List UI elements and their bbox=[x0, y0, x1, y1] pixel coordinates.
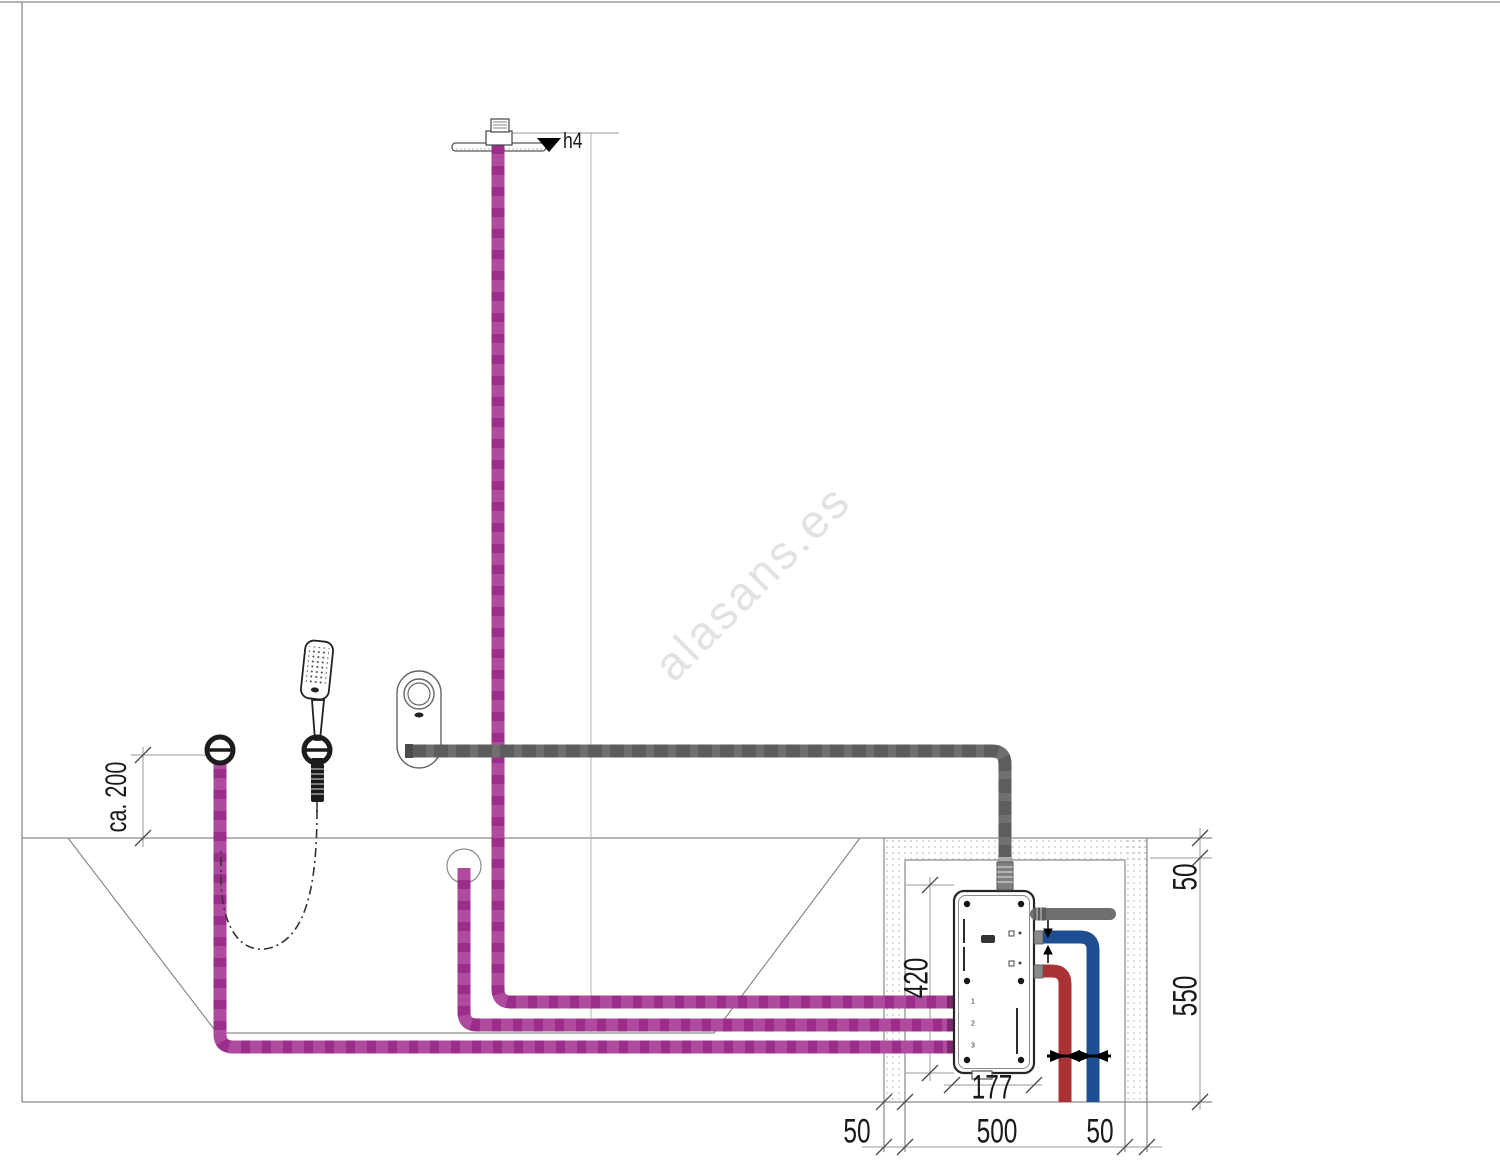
dim-right-top: 50 bbox=[1167, 863, 1206, 890]
port-label-2: 2 bbox=[971, 1021, 975, 1028]
port-label-1: 1 bbox=[971, 999, 975, 1006]
supply-pipes bbox=[220, 133, 954, 1054]
dim-bottom-left: 50 bbox=[843, 1113, 870, 1152]
hot-water-pipe bbox=[1034, 965, 1065, 1102]
dim-height-ref: h4 bbox=[563, 128, 583, 154]
hand-shower-outlet-elbow bbox=[207, 737, 233, 763]
mixer-box bbox=[954, 857, 1034, 1079]
dim-right-bottom: 550 bbox=[1167, 976, 1206, 1017]
port-label-3: 3 bbox=[971, 1043, 975, 1050]
dimension-lines bbox=[131, 747, 1212, 1147]
dim-bottom-right: 50 bbox=[1086, 1113, 1113, 1152]
shower-hose-loop bbox=[221, 810, 317, 949]
dim-box-width: 177 bbox=[972, 1069, 1013, 1108]
head-shower-fitting bbox=[486, 119, 512, 145]
hand-shower bbox=[221, 640, 334, 949]
dim-outlet-height: ca. 200 bbox=[100, 762, 134, 833]
height-reference-line bbox=[512, 133, 619, 1033]
mixed-water-stub bbox=[1034, 908, 1110, 921]
dim-bottom-center: 500 bbox=[977, 1113, 1018, 1152]
installation-diagram: alasans.es h4 ca. 200 420 177 50 500 50 … bbox=[0, 0, 1500, 1163]
box-top-connector bbox=[997, 857, 1013, 890]
arrow-up-icon bbox=[1044, 946, 1052, 954]
dim-box-height: 420 bbox=[898, 958, 937, 999]
